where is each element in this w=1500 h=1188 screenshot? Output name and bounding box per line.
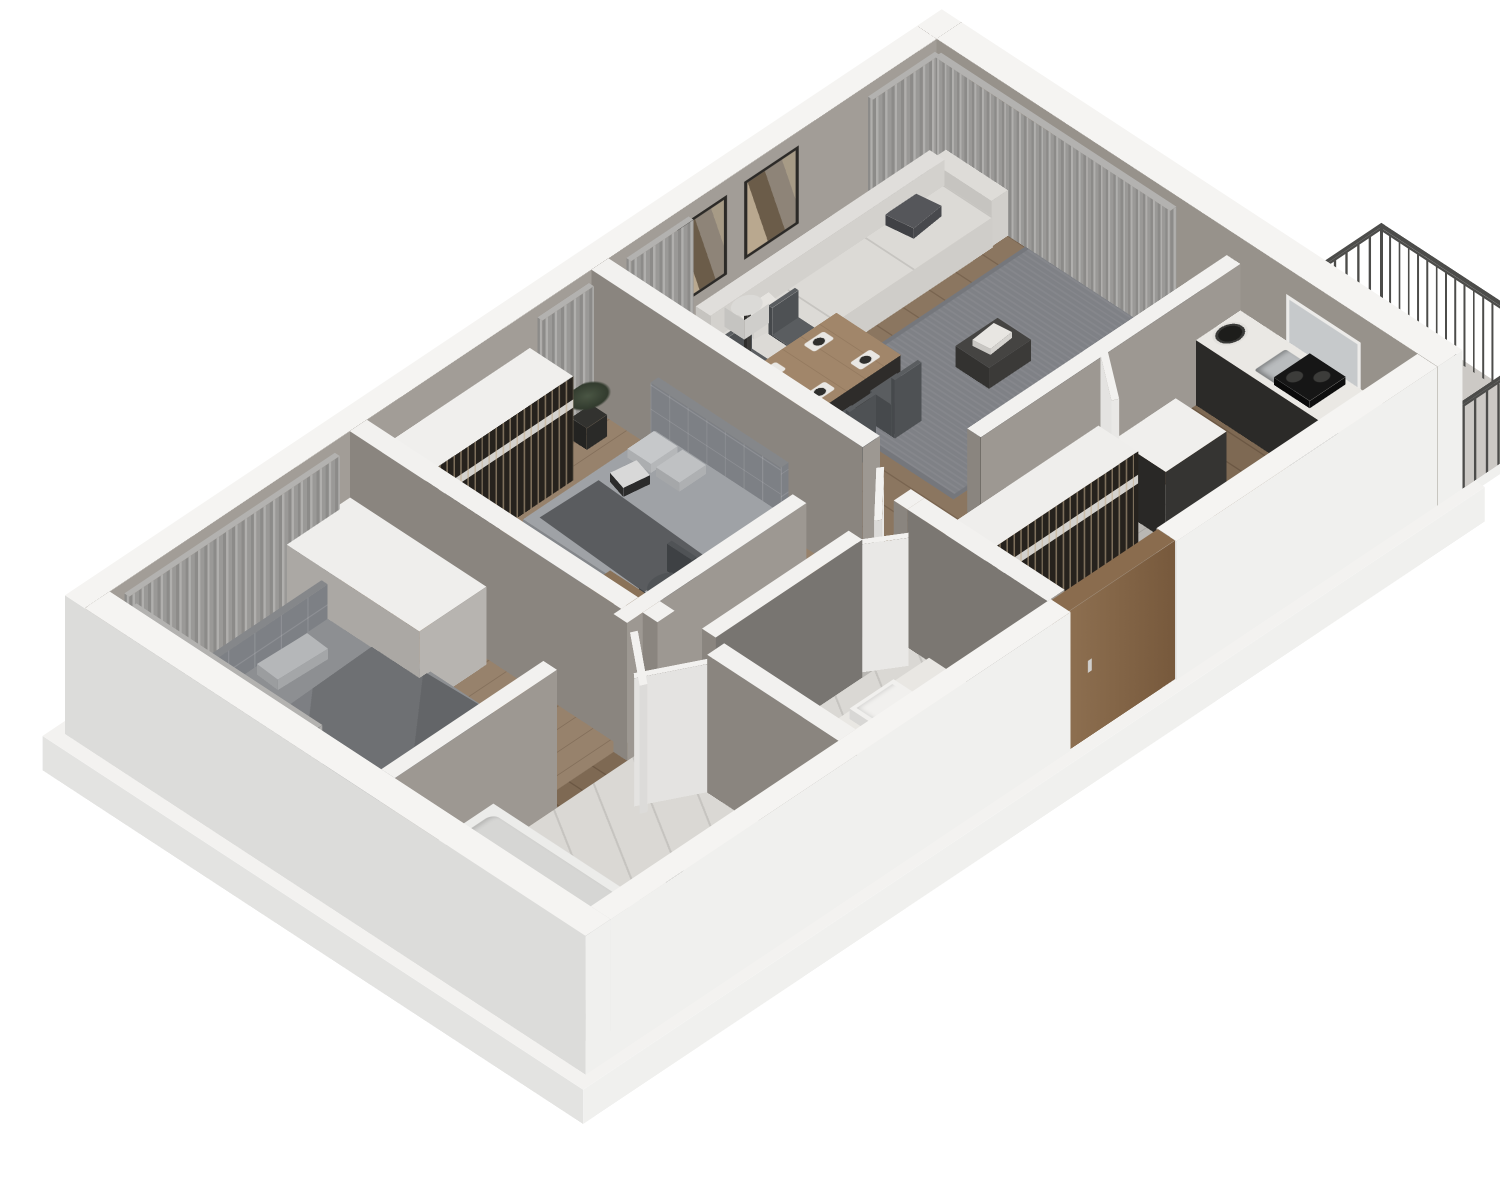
place-setting: [850, 349, 881, 370]
face-west: [640, 684, 648, 815]
apartment-3d-plan: [65, 148, 1462, 1075]
scene-caption: 3D isometric floor plan of a two-bedroom…: [0, 0, 1, 1]
floor-plan-scene: 3D isometric floor plan of a two-bedroom…: [0, 0, 1500, 1188]
face-south: [586, 919, 611, 1074]
wall-exterior-se-east-part: [1157, 492, 1438, 679]
door-handle: [1088, 658, 1092, 673]
face-south: [1437, 350, 1462, 505]
place-setting: [803, 331, 834, 352]
face-west: [65, 595, 85, 747]
face-west: [614, 614, 628, 762]
face-south: [857, 538, 909, 674]
